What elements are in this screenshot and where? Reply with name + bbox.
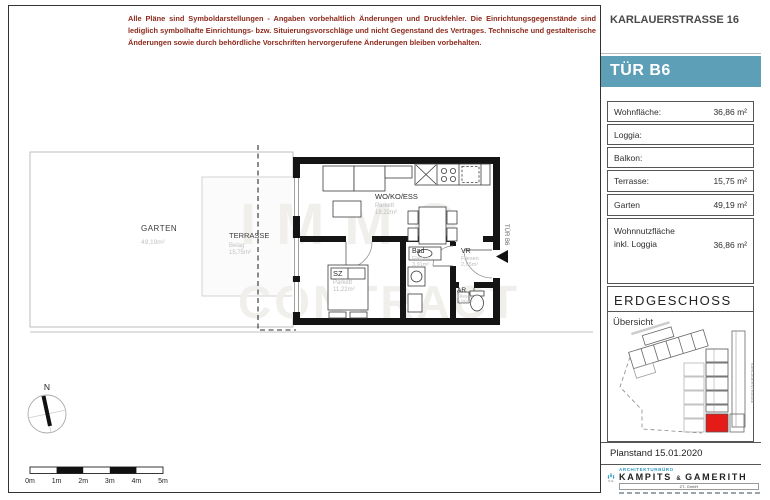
address-title: KARLAUERSTRASSE 16 [601,5,761,54]
row-label-line2: inkl. Loggia [614,239,657,249]
info-sidebar: KARLAUERSTRASSE 16 TÜR B6 Wohnfläche: 36… [600,5,761,493]
room-area-ar: 0,86m² [457,300,473,306]
scale-label-1: 1m [52,478,62,485]
room-label-ar: AR [457,287,466,294]
window-left-2 [292,238,300,276]
terrace-floor: Belag [229,243,244,249]
svg-text:K·G: K·G [608,479,613,483]
scale-label-3: 3m [105,478,115,485]
row-label: Wohnnutzfläche inkl. Loggia [614,225,675,251]
floor-title: ERDGESCHOSS [607,286,754,312]
table-row-garten: Garten 49,19 m² [607,194,754,216]
scale-label-4: 4m [132,478,142,485]
highlighted-unit [706,414,728,432]
garden-label: GARTEN [141,224,177,233]
architect-logo: K·G ARCHITEKTURBÜRO KAMPITS & GAMERITH Z… [601,465,761,493]
terrace-door [292,282,300,312]
garden-area: 49,19m² [141,239,166,246]
window-left-1 [292,178,300,216]
table-row-wohnflaeche: Wohnfläche: 36,86 m² [607,101,754,122]
row-label: Wohnfläche: [614,107,661,117]
room-label-sz: SZ [333,269,343,278]
room-label-vr: VR [461,248,471,255]
entrance-door-label: TÜR B6 [503,224,510,246]
row-label: Loggia: [614,130,642,140]
room-floor-wohnkochess: Parkett [375,203,394,209]
row-value: 36,86 m² [713,240,747,250]
room-area-bad: 3,91m² [412,262,429,268]
site-plan-overview: KARLAUERSTRASSE [610,315,760,439]
room-label-wohnkochess: WO/KO/ESS [375,192,418,201]
table-row-wohnnutzflaeche: Wohnnutzfläche inkl. Loggia 36,86 m² [607,218,754,284]
room-label-bad: Bad [412,248,425,255]
row-label: Terrasse: [614,176,649,186]
kitchen-counter [415,164,490,185]
scale-bar [30,467,163,474]
row-value: 49,19 m² [713,200,747,210]
overview-street-label: KARLAUERSTRASSE [750,363,755,404]
logo-name2: GAMERITH [685,472,747,482]
logo-name-text: KAMPITS & GAMERITH [619,472,761,482]
scale-label-0: 0m [25,478,35,485]
room-area-vr: 2,65m² [461,262,478,268]
table-row-balkon: Balkon: [607,147,754,168]
logo-name1: KAMPITS [619,472,672,482]
logo-subtitle: ZT- GmbH [619,483,759,490]
floor-plan-drawing: IMMO CONTRACT TÜR B6 [0,0,600,500]
room-area-wohnkochess: 18,22m² [375,210,397,216]
table-row-loggia: Loggia: [607,124,754,145]
overview-box: Übersicht [607,311,754,442]
terrace-label: TERRASSE [229,231,269,240]
logo-ampersand: & [676,476,680,482]
planstand: Planstand 15.01.2020 [601,442,761,465]
unit-banner: TÜR B6 [601,56,761,87]
room-floor-sz: Parkett [333,280,352,286]
row-label: Garten [614,200,640,210]
floorplan-document: Alle Pläne sind Symboldarstellungen - An… [0,0,770,500]
logo-address-line [619,492,761,495]
coffee-table [333,201,361,217]
row-label: Balkon: [614,153,642,163]
terrace-area: 15,75m² [229,250,251,256]
north-label: N [44,382,50,392]
scale-label-2: 2m [78,478,88,485]
architect-logo-icon: K·G [607,467,615,489]
area-table: Wohnfläche: 36,86 m² Loggia: Balkon: Ter… [607,101,754,286]
north-arrow-icon [28,395,66,433]
scale-label-5: 5m [158,478,168,485]
row-value: 15,75 m² [713,176,747,186]
room-area-sz: 11,22m² [333,287,355,293]
table-row-terrasse: Terrasse: 15,75 m² [607,170,754,192]
row-label-line1: Wohnnutzfläche [614,226,675,236]
row-value: 36,86 m² [713,107,747,117]
